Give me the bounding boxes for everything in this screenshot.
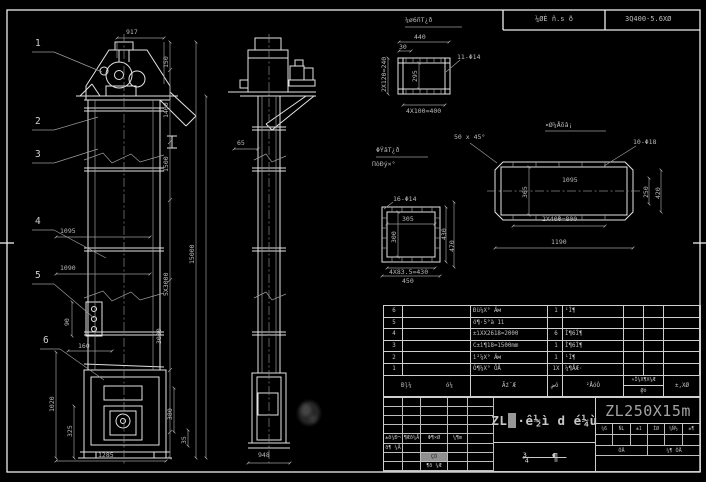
signature-cell (421, 398, 448, 407)
signature-cell (403, 398, 421, 407)
cad-drawing-canvas: ¼ØÈ ñ.s ð 3Q400-5.6XØ 1 2 3 4 5 6 917 15… (0, 0, 706, 482)
title-block-value-cell (648, 435, 665, 446)
signature-cell (448, 407, 468, 416)
detail-c-title: ΦΫâΤ¿ð (376, 146, 399, 154)
dim-1500: 1500 (162, 156, 170, 172)
title-block-value-cell (596, 435, 613, 446)
bom-cell-c7 (644, 364, 664, 376)
dim-1190: 1190 (551, 238, 567, 246)
strip-right-label: 3Q400-5.6XØ (625, 15, 671, 23)
bom-table: 6Ðü¼X° Äм1¹Ì¶5ö¶·5°à 1ì4±ìXX2618=20006Ì¶… (383, 305, 701, 397)
signature-cell (468, 453, 494, 462)
title-block-right-values (596, 435, 700, 446)
dim-65: 65 (237, 139, 245, 147)
signature-cell: Φ¶×Ø (421, 434, 448, 443)
bom-cell-c8 (664, 341, 700, 353)
bom-cell-qty: 1 (548, 306, 563, 318)
dim-440: 440 (414, 33, 426, 41)
bom-cell-no: 1 (384, 364, 403, 376)
dim-b-1095: 1095 (562, 176, 578, 184)
title-block-header-cell: ÌØ (648, 424, 665, 435)
bom-header-no-code: Ðļ¼ ó¼ (384, 376, 471, 396)
bom-cell-mat: ¹Ì¶ (563, 352, 624, 364)
title-block-value-cell (631, 435, 648, 446)
title-block-value-cell (683, 435, 700, 446)
dim-160: 160 (78, 342, 90, 350)
signature-cell: ¼¶m (448, 434, 468, 443)
balloon-1: 1 (35, 38, 41, 49)
bom-cell-c8 (664, 329, 700, 341)
dim-90: 90 (63, 318, 71, 326)
dim-420: 420 (654, 187, 662, 199)
balloon-2: 2 (35, 116, 41, 127)
signature-cell (384, 453, 403, 462)
balloon-6: 6 (43, 335, 49, 346)
signature-cell (403, 444, 421, 453)
bom-header-material: ²ÅóÒ (563, 376, 624, 396)
bom-cell-no: 5 (384, 318, 403, 330)
title-block-header-cell: ¼Ñ½ (665, 424, 682, 435)
bom-cell-c8 (664, 364, 700, 376)
bom-cell-no: 3 (384, 341, 403, 353)
signature-cell: ¶Æð¼Å (403, 434, 421, 443)
title-block-header-cell: ÑL (613, 424, 630, 435)
bom-cell-no: 4 (384, 329, 403, 341)
signature-cell: ð¶ ¼Å (384, 444, 403, 453)
signature-cell (448, 425, 468, 434)
title-block-value-cell (665, 435, 682, 446)
title-block-header-cell: ¼6 (596, 424, 613, 435)
bom-cell-name: Ó¶¼X° ÕÅ (471, 364, 548, 376)
bom-cell-c7 (644, 318, 664, 330)
bom-cell-mat: ¼¶ÅÆ· (563, 364, 624, 376)
signature-cell (448, 453, 468, 462)
signature-cell (468, 407, 494, 416)
signature-cell (384, 398, 403, 407)
detail-c-subtitle: ΠòĐý×° (372, 160, 395, 168)
side-view-linework (228, 38, 316, 448)
bom-cell-c6 (624, 341, 644, 353)
dim-1400: 1400 (162, 102, 170, 118)
title-block-header-cell: ±1 (631, 424, 648, 435)
bom-cell-mat (563, 318, 624, 330)
dim-1095: 1095 (60, 227, 76, 235)
dim-948: 948 (258, 451, 270, 459)
balloon-4: 4 (35, 216, 41, 227)
detail-a-title: ¼ø6ñΤ¿ð (405, 16, 432, 24)
bom-cell-code (403, 364, 471, 376)
bom-cell-name: ±ìXX2618=2000 (471, 329, 548, 341)
chamfer-note: 50 x 45° (454, 133, 485, 141)
balloon-5: 5 (35, 270, 41, 281)
dim-1020: 1020 (48, 396, 56, 412)
signature-cell (448, 444, 468, 453)
dim-4x100: 4X100=400 (406, 107, 441, 115)
bom-cell-name: Ðü¼X° Äм (471, 306, 548, 318)
bom-cell-code (403, 318, 471, 330)
bom-cell-mat: Ì¶6Ì¶ (563, 341, 624, 353)
bom-header-code: ó¼ (446, 383, 453, 389)
bom-cell-c7 (644, 306, 664, 318)
dim-365: 365 (521, 186, 529, 198)
bom-header-name: Ãż¯Æ (471, 376, 548, 396)
signature-cell (448, 462, 468, 471)
signature-cell (384, 407, 403, 416)
signature-cell (384, 425, 403, 434)
dim-1090: 1090 (60, 264, 76, 272)
dim-15000: 15000 (188, 244, 196, 264)
bom-cell-c7 (644, 352, 664, 364)
drawing-title: ZL ¶ ·ê½ì d é¼ù (494, 398, 595, 443)
signature-cell (421, 407, 448, 416)
bom-header-weight-bottom: Ø̼ó (624, 386, 663, 396)
dim-450: 450 (402, 277, 414, 285)
dim-150: 150 (162, 56, 170, 68)
drawing-type-label: ¾ ¶ (494, 443, 595, 471)
detail-linework (382, 58, 633, 262)
signature-cell (403, 416, 421, 425)
dim-4x83: 4X83.5=430 (389, 268, 428, 276)
bom-cell-code (403, 352, 471, 364)
detail-a-holes-note: 11-Φ14 (457, 53, 480, 61)
signature-cell (468, 416, 494, 425)
bom-cell-c8 (664, 318, 700, 330)
signature-cell (403, 453, 421, 462)
title-block-right: ZL250X15m ¼6ÑL±1ÌØ¼Ñ½±¶ ÕÅ ¼¶ ÕÅ (596, 398, 700, 471)
drawing-title-part2: ·ê½ì d é¼ù (517, 413, 597, 428)
signature-cell (468, 425, 494, 434)
bom-cell-qty: 1X (548, 364, 563, 376)
smudge-artifact (298, 401, 320, 425)
bom-rows: 6Ðü¼X° Äм1¹Ì¶5ö¶·5°à 1ì4±ìXX2618=20006Ì¶… (384, 306, 700, 376)
signature-cell: ÇÕ (421, 453, 448, 462)
bom-cell-c7 (644, 341, 664, 353)
bom-cell-c6 (624, 306, 644, 318)
bom-cell-code (403, 329, 471, 341)
bom-cell-c6 (624, 318, 644, 330)
dim-1285: 1285 (98, 451, 114, 459)
dim-295: 295 (411, 70, 419, 82)
bom-header-no: Ðļ¼ (401, 383, 411, 389)
title-block-center: ZL ¶ ·ê½ì d é¼ù ¾ ¶ (494, 398, 596, 471)
signature-cell (421, 444, 448, 453)
bom-cell-name: ö¶·5°à 1ì (471, 318, 548, 330)
bom-header-remark: ±,XØ (664, 376, 700, 396)
bom-cell-no: 6 (384, 306, 403, 318)
detail-b-holes-note: 10-Φ18 (633, 138, 656, 146)
signature-cell (448, 398, 468, 407)
title-block-header-cell: ±¶ (683, 424, 700, 435)
dim-305: 305 (402, 215, 414, 223)
bom-cell-c8 (664, 352, 700, 364)
dim-300: 300 (390, 231, 398, 243)
signature-cell (448, 416, 468, 425)
strip-left-label: ¼ØÈ ñ.s ð (535, 15, 573, 23)
signature-cell (403, 462, 421, 471)
dim-5x3000: 5X3000 (162, 273, 170, 296)
model-number: ZL250X15m (596, 398, 700, 424)
signature-cell (403, 425, 421, 434)
title-block-right-headers: ¼6ÑL±1ÌØ¼Ñ½±¶ (596, 424, 700, 435)
signature-cell (384, 416, 403, 425)
scale-label-a: ÕÅ (596, 446, 648, 456)
bom-header-weight-top: «Ì¼X¶X¼Æ (624, 376, 663, 387)
bom-cell-c8 (664, 306, 700, 318)
bom-cell-c6 (624, 364, 644, 376)
bom-cell-c6 (624, 329, 644, 341)
title-block: ±ð¼Ð¬¶Æð¼ÅΦ¶×Ø¼¶mð¶ ¼ÅÇÕ¶ð ¼Æ ZL ¶ ·ê½ì … (383, 397, 701, 472)
bom-cell-mat: ¹Ì¶ (563, 306, 624, 318)
dim-3000: 3000 (155, 328, 163, 344)
dim-917: 917 (126, 28, 138, 36)
dim-2x400: 2X400=800 (542, 215, 577, 223)
signature-cell (421, 416, 448, 425)
bom-cell-name: C±ì¶18=1500mm (471, 341, 548, 353)
detail-c-holes-note: 16-Φ14 (393, 195, 416, 203)
signature-cell (384, 462, 403, 471)
bom-cell-qty: 1 (548, 341, 563, 353)
title-block-value-cell (613, 435, 630, 446)
drawing-title-part1: ZL (491, 413, 507, 428)
bom-cell-c7 (644, 329, 664, 341)
detail-b-title: ¤Ø¼Åõâ¡ (545, 121, 572, 129)
scale-label-b: ¼¶ ÕÅ (648, 446, 700, 456)
signature-cell (468, 434, 494, 443)
dim-250: 250 (642, 186, 650, 198)
bom-cell-qty (548, 318, 563, 330)
balloon-3: 3 (35, 149, 41, 160)
bom-cell-code (403, 306, 471, 318)
bom-cell-name: ì²¼X° Äм (471, 352, 548, 364)
bom-cell-c6 (624, 352, 644, 364)
signature-cell (468, 398, 494, 407)
dim-35: 35 (180, 436, 188, 444)
dim-2x120: 2X120=240 (380, 57, 388, 92)
bom-cell-qty: 1 (548, 352, 563, 364)
signature-cell: ±ð¼Ð¬ (384, 434, 403, 443)
bom-cell-mat: Ì¶6Ì¶ (563, 329, 624, 341)
signature-cell (403, 407, 421, 416)
signature-cell (468, 444, 494, 453)
signature-grid: ±ð¼Ð¬¶Æð¼ÅΦ¶×Ø¼¶mð¶ ¼ÅÇÕ¶ð ¼Æ (384, 398, 494, 471)
signature-cell: ¶ð ¼Æ (421, 462, 448, 471)
signature-cell (421, 425, 448, 434)
dim-30: 30 (399, 43, 407, 51)
bom-header-qty: ضó (548, 376, 563, 396)
bom-header-weight: «Ì¼X¶X¼Æ Ø̼ó (624, 376, 664, 396)
drawing-title-block-glyph: ¶ (508, 413, 516, 428)
dim-470: 470 (448, 240, 456, 252)
bom-cell-qty: 6 (548, 329, 563, 341)
bom-cell-code (403, 341, 471, 353)
front-view-linework (76, 42, 196, 458)
bom-header-row: Ðļ¼ ó¼ Ãż¯Æ ضó ²ÅóÒ «Ì¼X¶X¼Æ Ø̼ó ±,XØ (384, 376, 700, 396)
signature-cell (468, 462, 494, 471)
title-block-scale-row: ÕÅ ¼¶ ÕÅ (596, 446, 700, 456)
dim-380: 380 (166, 408, 174, 420)
bom-cell-no: 2 (384, 352, 403, 364)
dim-325: 325 (66, 425, 74, 437)
dim-430: 430 (440, 228, 448, 240)
